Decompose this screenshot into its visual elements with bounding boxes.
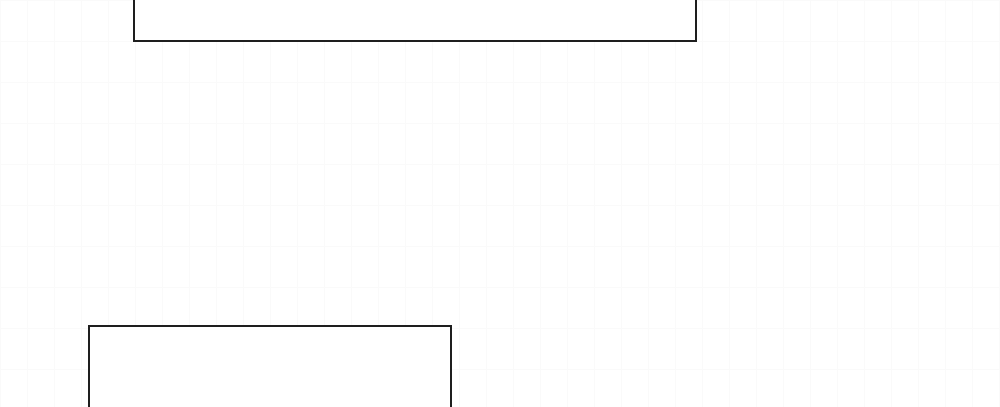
bottom-left-outlined-box	[88, 325, 452, 407]
top-outlined-box	[133, 0, 697, 42]
page-background	[0, 0, 1000, 407]
